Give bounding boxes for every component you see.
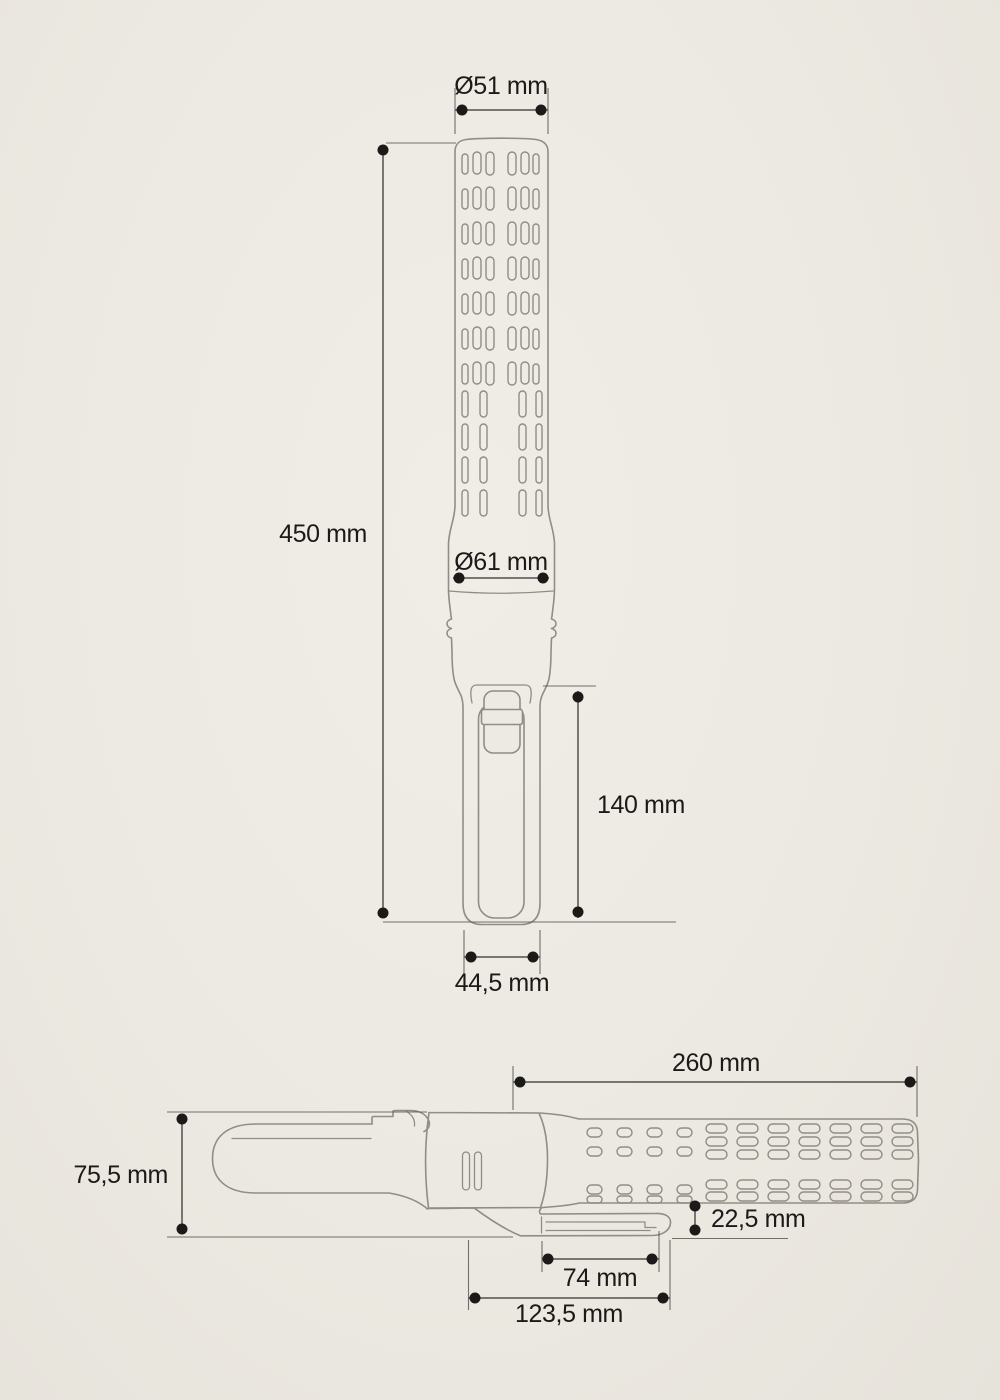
side-latch-outline	[372, 1111, 429, 1132]
dim-dot	[690, 1225, 701, 1236]
side-dimensions: 260 mm 75,5 mm 22,5 mm 74 mm 123,5 mm	[74, 1049, 917, 1328]
label-overall-length: 450 mm	[279, 520, 367, 548]
side-handle-outline	[213, 1124, 428, 1209]
dim-dot	[177, 1224, 188, 1235]
front-body-outline	[447, 138, 556, 924]
dim-dot	[905, 1077, 916, 1088]
dim-dot	[690, 1201, 701, 1212]
side-vent-slot	[475, 1152, 482, 1190]
dim-dot	[177, 1114, 188, 1125]
power-button-band	[482, 710, 523, 725]
label-overall-height: 75,5 mm	[74, 1161, 168, 1189]
dim-dot	[573, 692, 584, 703]
dim-dot	[573, 907, 584, 918]
front-tube-perforations	[462, 152, 542, 516]
front-view	[447, 138, 556, 924]
label-barrel-length: 260 mm	[672, 1049, 760, 1077]
label-handle-length: 140 mm	[597, 791, 685, 819]
label-body-diameter: Ø61 mm	[454, 548, 547, 576]
side-body-block	[426, 1113, 548, 1209]
side-clip-inner-lines	[542, 1217, 657, 1233]
label-handle-width: 44,5 mm	[455, 969, 549, 997]
dim-dot	[378, 908, 389, 919]
dim-dot	[647, 1254, 658, 1265]
side-view	[213, 1111, 919, 1236]
dim-dot	[457, 105, 468, 116]
side-vent-slot	[463, 1152, 470, 1190]
label-head-diameter: Ø51 mm	[454, 72, 547, 100]
dim-dot	[528, 952, 539, 963]
dim-dot	[536, 105, 547, 116]
dim-dot	[466, 952, 477, 963]
dim-dot	[658, 1293, 669, 1304]
technical-drawing-canvas: Ø51 mm 450 mm Ø61 mm 140 mm 44,5 mm	[0, 0, 1000, 1400]
dimension-drawing: Ø51 mm 450 mm Ø61 mm 140 mm 44,5 mm	[0, 0, 1000, 1400]
side-latch-inner	[406, 1111, 415, 1126]
dim-dot	[515, 1077, 526, 1088]
front-joint-line	[449, 591, 553, 593]
dim-dot	[543, 1254, 554, 1265]
label-clip-clearance: 22,5 mm	[711, 1205, 805, 1233]
label-clip-length: 123,5 mm	[515, 1300, 623, 1328]
front-dimensions: Ø51 mm 450 mm Ø61 mm 140 mm 44,5 mm	[279, 72, 685, 997]
label-clip-opening: 74 mm	[563, 1264, 637, 1292]
dim-dot	[470, 1293, 481, 1304]
dim-dot	[378, 145, 389, 156]
side-barrel-perforations	[587, 1124, 913, 1203]
